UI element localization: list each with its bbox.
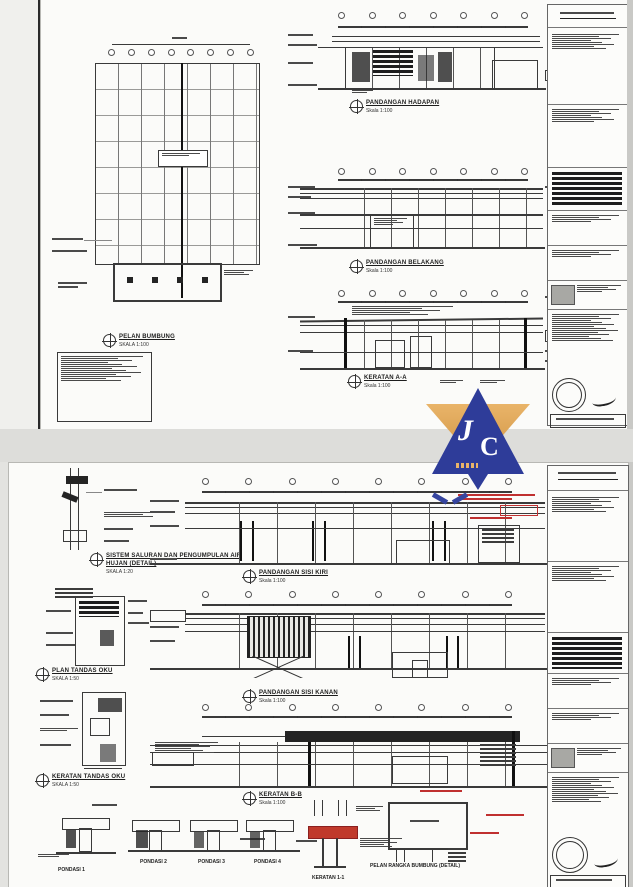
- grid-bubble: [338, 12, 345, 19]
- grid-verticals: [338, 320, 528, 368]
- text-line: [552, 336, 589, 337]
- text-line: [352, 90, 373, 91]
- text-line: [61, 376, 131, 377]
- text-line: [552, 507, 614, 508]
- location-map-thumbnail: [551, 285, 575, 305]
- grid-bubble-row: [338, 168, 528, 175]
- text-line: [150, 511, 175, 513]
- grid-bubble: [128, 49, 135, 56]
- column-pair: [240, 521, 254, 561]
- section-window: [90, 718, 110, 736]
- reference-text: [552, 109, 622, 122]
- text-line: [128, 622, 149, 624]
- anchor-bolt: [432, 848, 433, 862]
- dimension-line: [338, 179, 528, 181]
- louver-screen: [247, 616, 311, 658]
- title-block-approval: [548, 773, 628, 887]
- text-line: [162, 153, 200, 154]
- rear-elevation-caption: PANDANGAN BELAKANG Skala 1:100: [350, 260, 444, 274]
- grid-bubble: [148, 49, 155, 56]
- text-line: [552, 785, 602, 786]
- sheet-number-strip: [550, 875, 626, 887]
- text-line: [352, 306, 453, 307]
- text-line: [552, 783, 591, 784]
- level-label: [150, 558, 178, 560]
- view-symbol-icon: [243, 690, 256, 703]
- sheet1-binding-edge: [38, 0, 40, 429]
- roof-line: [202, 736, 285, 737]
- text-line: [356, 810, 380, 811]
- level-label: [288, 62, 314, 64]
- drawing-scale: Skala 1:100: [259, 698, 338, 704]
- leader-labels: [356, 806, 384, 811]
- project-title-text: [552, 637, 622, 669]
- dimension-line: [84, 768, 122, 769]
- text-line: [288, 212, 315, 214]
- drawing-title: PELAN BUMBUNG: [119, 334, 175, 341]
- grid-bubble: [202, 591, 209, 598]
- text-line: [552, 684, 591, 685]
- dimension-line: [202, 604, 512, 606]
- text-line: [552, 34, 619, 35]
- signature: [591, 392, 616, 407]
- text-line: [288, 62, 313, 64]
- text-line: [470, 517, 512, 519]
- text-line: [40, 730, 67, 731]
- title-block-location: [548, 744, 628, 773]
- text-line: [552, 48, 606, 49]
- leader-label: [52, 238, 84, 240]
- text-line: [46, 632, 73, 634]
- text-line: [552, 797, 609, 798]
- leader-label: [128, 600, 148, 602]
- drawing-title: KERATAN B-B: [259, 792, 302, 799]
- grid-bubble-row: [338, 12, 528, 19]
- section-bb-caption: KERATAN B-B Skala 1:100: [243, 792, 302, 806]
- dimension-text: [172, 37, 188, 39]
- view-symbol-icon: [348, 375, 361, 388]
- location-text: [577, 285, 623, 292]
- right-elevation-caption: PANDANGAN SISI KANAN Skala 1:100: [243, 690, 338, 704]
- grid-bubble-row: [108, 49, 254, 56]
- text-line: [155, 744, 199, 745]
- header-underline: [558, 479, 618, 480]
- level-label: [288, 244, 318, 246]
- text-line: [552, 316, 599, 317]
- text-line: [552, 219, 611, 220]
- plan-center-label-text: [162, 153, 202, 156]
- detail-label: KERATAN 1-1: [312, 876, 344, 882]
- text-line: [552, 777, 619, 778]
- anchor-bolt: [322, 800, 323, 816]
- text-line: [552, 572, 591, 573]
- text-line: [552, 115, 591, 116]
- level-label: [288, 84, 318, 86]
- grid-bubble: [207, 49, 214, 56]
- anchor-bolt: [338, 800, 339, 816]
- ground-line: [242, 850, 300, 852]
- text-line: [61, 362, 108, 363]
- text-line: [61, 358, 118, 359]
- title-block-firm-info: [548, 491, 628, 562]
- text-line: [288, 44, 317, 46]
- front-elevation-caption: PANDANGAN HADAPAN Skala 1:100: [350, 100, 439, 114]
- ground-line: [150, 786, 555, 788]
- grid-bubble: [430, 12, 437, 19]
- text-line: [104, 528, 133, 530]
- text-line: [560, 12, 614, 14]
- footing-column: [263, 830, 276, 852]
- section-column: [344, 318, 347, 368]
- text-line: [352, 314, 428, 315]
- text-line: [288, 196, 311, 198]
- grid-bubble: [338, 290, 345, 297]
- text-line: [558, 472, 616, 474]
- title-block-project: [548, 633, 628, 674]
- text-line: [552, 713, 619, 714]
- text-line: [552, 314, 619, 315]
- roof-line: [332, 36, 540, 37]
- leader-label: [46, 644, 76, 646]
- text-line: [155, 742, 218, 743]
- text-line: [38, 854, 69, 855]
- stair-detail-text: [374, 218, 408, 225]
- text-line: [40, 714, 69, 716]
- grid-bubble: [289, 478, 296, 485]
- text-line: [352, 312, 410, 313]
- drawing-scale: Skala 1:100: [366, 268, 444, 274]
- text-line: [552, 324, 614, 325]
- drawing-scale: SKALA 1:50: [52, 782, 125, 788]
- title-block-reference: [548, 105, 628, 168]
- left-elevation-caption: PANDANGAN SISI KIRI Skala 1:100: [243, 570, 328, 584]
- grid-bubble: [491, 168, 498, 175]
- text-line: [356, 806, 383, 807]
- text-line: [552, 36, 599, 37]
- text-line: [552, 119, 614, 120]
- text-line: [552, 254, 611, 255]
- title-block-drawn-by: [548, 211, 628, 246]
- text-line: [552, 497, 619, 498]
- text-line: [288, 316, 315, 318]
- text-line: [162, 155, 189, 156]
- text-line: [356, 808, 375, 809]
- drawing-title: PLAN TANDAS OKU: [52, 668, 113, 675]
- leader-label: [104, 528, 134, 530]
- text-line: [104, 489, 137, 491]
- text-line: [577, 752, 616, 753]
- text-line: [552, 252, 599, 253]
- leader-label-box: [152, 752, 194, 766]
- text-line: [552, 781, 611, 782]
- text-line: [46, 644, 75, 646]
- text-line: [150, 626, 179, 628]
- grid-bubble: [462, 704, 469, 711]
- text-line: [552, 793, 618, 794]
- text-line: [104, 540, 129, 542]
- text-line: [552, 791, 606, 792]
- location-map-thumbnail: [551, 748, 575, 768]
- dimension-line: [338, 301, 528, 303]
- annotation-text: [480, 744, 516, 766]
- text-line: [128, 612, 143, 614]
- frame-plan-text: [410, 820, 440, 822]
- window-panel: [352, 52, 370, 82]
- text-line: [61, 374, 116, 375]
- ground-line: [186, 850, 244, 852]
- toilet-section-caption: KERATAN TANDAS OKU SKALA 1:50: [36, 774, 125, 788]
- column-line: [322, 838, 324, 866]
- text-line: [577, 750, 608, 751]
- dimension-line: [112, 44, 250, 45]
- drawing-scale: Skala 1:100: [259, 578, 328, 584]
- text-line: [552, 511, 606, 512]
- title-block-checked-by: [548, 246, 628, 281]
- grid-bubble: [460, 290, 467, 297]
- title-block-reference: [548, 562, 628, 633]
- text-line: [552, 338, 601, 339]
- grid-bubble: [332, 591, 339, 598]
- text-line: [552, 801, 601, 802]
- footing-column: [149, 830, 162, 852]
- text-line: [552, 789, 594, 790]
- drawing-scale: Skala 1:100: [366, 108, 439, 114]
- level-label: [150, 525, 180, 527]
- grid-bubble: [168, 49, 175, 56]
- leader-label: [296, 840, 318, 842]
- approval-stamp: [552, 378, 586, 412]
- text-line: [224, 272, 244, 273]
- dimension-line: [338, 26, 528, 28]
- view-symbol-icon: [243, 792, 256, 805]
- grid-bubble: [375, 704, 382, 711]
- title-block-header-text: [560, 12, 616, 14]
- base-line: [314, 866, 346, 868]
- text-line: [352, 310, 440, 311]
- grid-bubble: [418, 591, 425, 598]
- text-line: [352, 92, 367, 93]
- grid-bubble: [338, 168, 345, 175]
- ground-line: [150, 668, 555, 670]
- gutter-channel: [63, 530, 87, 542]
- grid-bubble: [247, 49, 254, 56]
- grid-bubble: [202, 704, 209, 711]
- text-line: [552, 717, 611, 718]
- logo-flourish: [456, 463, 478, 468]
- level-label: [288, 34, 314, 36]
- text-line: [552, 334, 609, 335]
- grid-bubble: [521, 12, 528, 19]
- leader-label: [46, 610, 72, 612]
- text-line: [128, 600, 147, 602]
- ground-line: [300, 247, 545, 249]
- text-line: [172, 37, 187, 39]
- frame-plan-box: [388, 802, 468, 850]
- text-line: [552, 117, 602, 118]
- level-label: [288, 44, 318, 46]
- view-symbol-icon: [350, 100, 363, 113]
- text-line: [552, 330, 618, 331]
- text-line: [420, 790, 462, 792]
- leader-label: [40, 744, 72, 746]
- level-label: [150, 626, 180, 628]
- grid-bubble: [245, 478, 252, 485]
- text-line: [552, 499, 599, 500]
- reference-text: [552, 566, 622, 581]
- grid-bubble: [332, 704, 339, 711]
- text-line: [552, 38, 611, 39]
- text-line: [61, 368, 112, 369]
- footing-shade: [194, 832, 204, 848]
- title-block-firm-info: [548, 28, 628, 105]
- stair-text: [482, 529, 514, 543]
- text-line: [552, 256, 591, 257]
- text-line: [552, 250, 619, 251]
- text-line: [552, 678, 619, 679]
- grid-bubble: [289, 591, 296, 598]
- grid-bubble: [505, 591, 512, 598]
- text-line: [480, 380, 505, 381]
- grid-bubble: [245, 704, 252, 711]
- title-block-header-text: [558, 472, 618, 474]
- title-block-location: [548, 281, 628, 310]
- text-line: [61, 360, 132, 361]
- text-line: [288, 186, 315, 188]
- signature: [593, 853, 618, 868]
- text-line: [552, 680, 599, 681]
- grid-bubble: [399, 290, 406, 297]
- text-line: [552, 322, 602, 323]
- footing-column: [79, 828, 92, 852]
- interior-opening: [375, 340, 405, 368]
- title-block-sheet2: [547, 465, 629, 887]
- grid-bubble: [369, 168, 376, 175]
- column-mark: [177, 277, 183, 283]
- wall-line: [300, 228, 543, 229]
- footing-label: PONDASI 4: [254, 860, 281, 866]
- text-line: [104, 514, 143, 515]
- grid-bubble: [369, 290, 376, 297]
- leader-label: [352, 90, 374, 93]
- red-markup-text: [486, 814, 526, 816]
- column-pair: [312, 521, 326, 561]
- drawing-title: PANDANGAN SISI KANAN: [259, 690, 338, 697]
- text-line: [552, 719, 591, 720]
- footing-label: PONDASI 3: [198, 860, 225, 866]
- wall-line: [300, 214, 543, 216]
- text-line: [552, 111, 599, 112]
- text-line: [577, 287, 608, 288]
- footing-shade: [66, 830, 76, 848]
- text-line: [58, 286, 78, 288]
- title-block-approval: [548, 310, 628, 428]
- view-symbol-icon: [243, 570, 256, 583]
- leader-label: [40, 728, 80, 731]
- ground-line: [300, 368, 545, 370]
- checked-by-text: [552, 250, 622, 257]
- title-block-drawn-by: [548, 674, 628, 709]
- text-line: [552, 328, 606, 329]
- firm-info-text: [552, 34, 622, 49]
- text-line: [552, 109, 619, 110]
- wc-fixture: [100, 630, 114, 646]
- leader-label: [58, 282, 88, 288]
- text-line: [40, 728, 78, 729]
- text-line: [556, 879, 612, 881]
- leader-line: [86, 492, 102, 493]
- grid-bubble: [460, 12, 467, 19]
- section-annotation-text: [352, 306, 457, 315]
- drawing-scale: Skala 1:100: [364, 383, 407, 389]
- grid-bubble: [399, 12, 406, 19]
- grid-bubble: [505, 704, 512, 711]
- window-panel: [438, 52, 452, 82]
- text-line: [61, 356, 143, 357]
- footing-shade: [136, 830, 148, 848]
- ground-line: [128, 850, 186, 852]
- red-markup-text: [470, 517, 514, 519]
- title-block-header: [548, 466, 628, 491]
- logo-wing-left: [432, 492, 448, 504]
- grid-bubble: [187, 49, 194, 56]
- text-line: [552, 795, 598, 796]
- drawing-title: KERATAN TANDAS OKU: [52, 774, 125, 781]
- grid-bubble: [227, 49, 234, 56]
- column-mark: [152, 277, 158, 283]
- text-line: [150, 558, 177, 560]
- grid-bubble: [399, 168, 406, 175]
- approval-notes-text: [552, 314, 622, 341]
- drawn-by-text: [552, 215, 622, 222]
- text-line: [150, 640, 175, 642]
- text-line: [556, 418, 614, 420]
- drawing-title: KERATAN A-A: [364, 375, 407, 382]
- title-block-project: [548, 168, 628, 211]
- text-line: [61, 380, 121, 381]
- footing-shade: [250, 832, 260, 848]
- drawing-scale: Skala 1:100: [259, 800, 302, 806]
- leader-label: [52, 250, 88, 252]
- grid-bubble: [202, 478, 209, 485]
- grid-bubble: [289, 704, 296, 711]
- text-line: [552, 578, 594, 579]
- text-line: [552, 217, 599, 218]
- roof-line: [332, 41, 540, 42]
- logo-bottom-tip: [468, 474, 488, 490]
- text-line: [288, 34, 313, 36]
- text-line: [552, 799, 589, 800]
- text-line: [58, 282, 87, 284]
- text-line: [410, 820, 439, 822]
- column-line: [336, 838, 338, 866]
- level-label: [288, 186, 316, 188]
- red-markup-text: [420, 790, 464, 792]
- logo-top-text: [480, 380, 506, 383]
- leader-label: [46, 632, 74, 634]
- text-line: [52, 250, 87, 252]
- firm-info-text: [552, 497, 622, 512]
- central-recess: [392, 756, 448, 784]
- text-line: [552, 221, 591, 222]
- location-text: [577, 748, 623, 755]
- footing-label: PONDASI 1: [58, 868, 85, 874]
- anchor-bolt: [346, 800, 347, 816]
- text-line: [288, 84, 317, 86]
- detail-symbol-icon: [90, 553, 103, 566]
- view-symbol-icon: [36, 774, 49, 787]
- logo-wing-right: [452, 492, 468, 504]
- interior-opening: [410, 336, 432, 368]
